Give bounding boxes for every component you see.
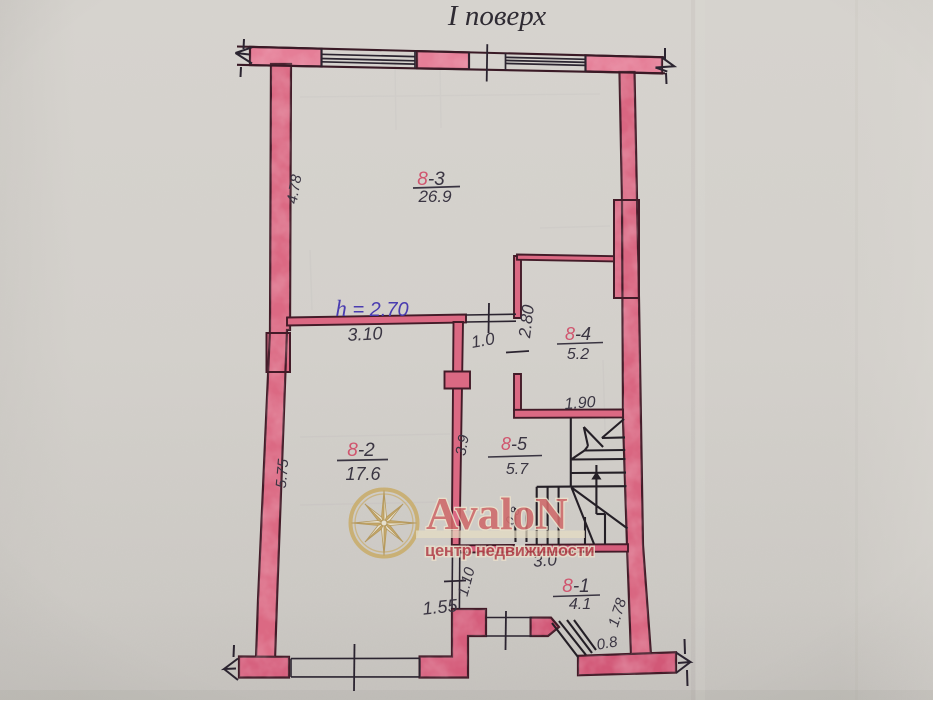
svg-text:5.75: 5.75 [273,458,293,489]
svg-text:8-4: 8-4 [565,324,591,344]
svg-text:5.2: 5.2 [567,346,589,363]
svg-text:центр недвижимости: центр недвижимости [425,542,594,560]
svg-text:h = 2.70: h = 2.70 [335,296,408,321]
svg-text:8-2: 8-2 [347,440,375,461]
svg-text:26.9: 26.9 [417,187,452,206]
svg-text:8-1: 8-1 [562,576,589,597]
svg-text:3.10: 3.10 [347,323,383,345]
svg-text:І поверх: І поверх [447,0,546,32]
svg-text:5.7: 5.7 [506,461,529,478]
svg-text:1.90: 1.90 [564,394,596,413]
svg-text:17.6: 17.6 [345,464,381,484]
svg-text:8-5: 8-5 [501,434,528,454]
svg-text:AvaloN: AvaloN [426,489,568,539]
svg-text:1.55: 1.55 [421,595,459,619]
svg-text:4.1: 4.1 [569,596,591,613]
